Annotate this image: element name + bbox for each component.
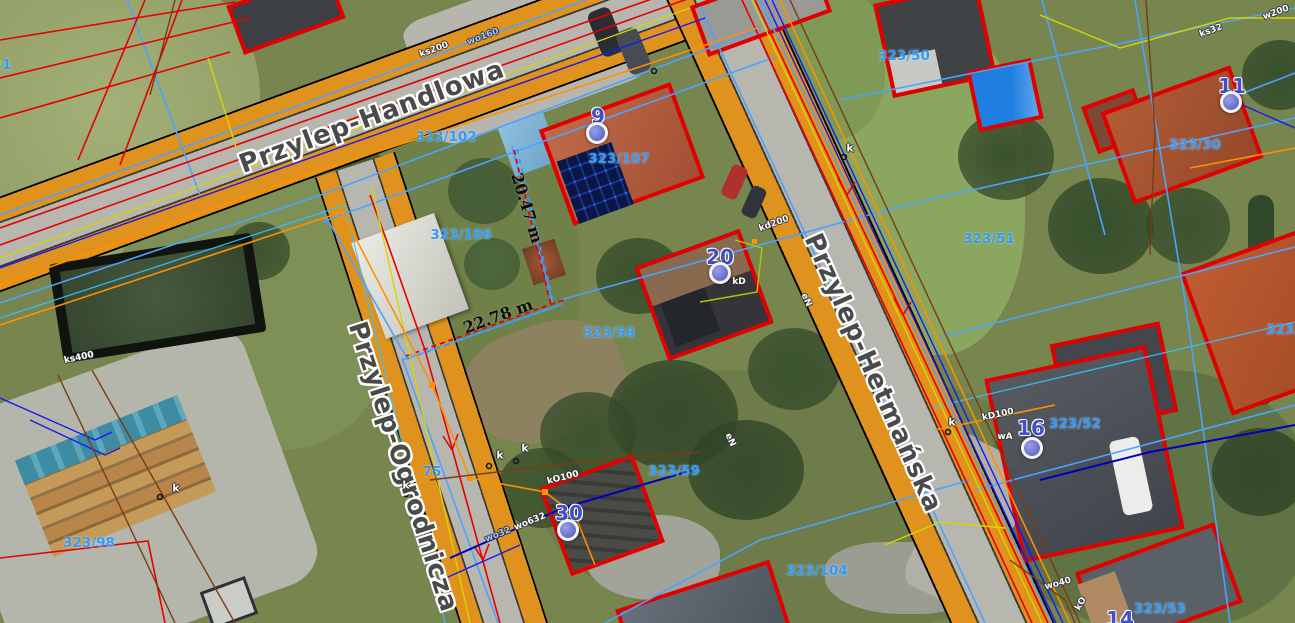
survey-point-label: k: [948, 416, 955, 429]
tree: [448, 158, 520, 224]
survey-point-label: k: [496, 449, 503, 462]
utility-label: w200: [1262, 4, 1291, 23]
parcel-label: 323/30: [1169, 137, 1221, 153]
tree: [1242, 40, 1295, 110]
parcel-label: 323/98: [63, 535, 115, 551]
parcel-label: 75: [423, 464, 442, 480]
map-canvas[interactable]: Przylep-Handlowa Przylep-Hetmańska Przyl…: [0, 0, 1295, 623]
parcel-label: 323/52: [1049, 416, 1101, 432]
parcel-label: 323/107: [588, 151, 649, 167]
house-marker-30[interactable]: [557, 519, 579, 541]
survey-point-label: k: [172, 482, 179, 495]
survey-point-label: k: [521, 442, 528, 455]
pond-water: [60, 243, 256, 353]
survey-point-label: k: [846, 142, 853, 155]
parcel-label: 323/29: [1266, 322, 1295, 338]
car: [720, 163, 749, 201]
parcel-label: 323/53: [1134, 601, 1186, 617]
parcel-label: 323/104: [786, 563, 847, 579]
utility-label: ks32: [1198, 22, 1224, 40]
parcel-label: 323/51: [963, 231, 1015, 247]
parcel-label: 323/58: [583, 325, 635, 341]
tree: [688, 420, 804, 520]
parcel-label: 323/106: [430, 227, 491, 243]
house-marker-9[interactable]: [586, 122, 608, 144]
parcel-label: 323/102: [415, 129, 476, 145]
house-number: 14: [1106, 607, 1134, 623]
house-marker-20[interactable]: [709, 262, 731, 284]
house-marker-11[interactable]: [1220, 91, 1242, 113]
utility-label: wA: [997, 432, 1012, 442]
tree: [464, 238, 520, 290]
building-top-left: [226, 0, 345, 55]
parcel-label: 323/50: [878, 48, 930, 64]
utility-label: kD: [732, 277, 745, 287]
tree: [1146, 188, 1230, 264]
parcel-label: 323/59: [648, 463, 700, 479]
house-marker-16[interactable]: [1021, 437, 1043, 459]
survey-point-label: k: [402, 479, 409, 492]
parcel-label: 41: [0, 57, 11, 73]
